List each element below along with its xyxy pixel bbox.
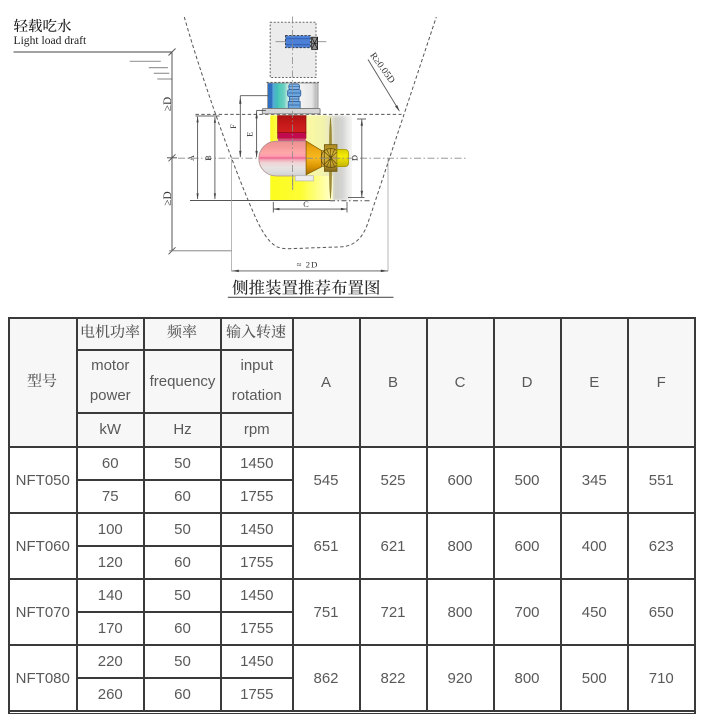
svg-text:E: E <box>245 132 254 137</box>
svg-text:B: B <box>204 155 213 161</box>
svg-text:≥D: ≥D <box>162 191 174 205</box>
svg-text:Light load draft: Light load draft <box>14 34 88 47</box>
svg-text:≥D: ≥D <box>162 97 174 111</box>
svg-text:D: D <box>351 155 360 161</box>
svg-text:A: A <box>187 155 196 161</box>
svg-text:≈ 2D: ≈ 2D <box>297 260 319 270</box>
svg-text:C: C <box>303 200 309 209</box>
svg-text:F: F <box>229 124 238 129</box>
svg-text:R≥0.05D: R≥0.05D <box>367 50 397 85</box>
